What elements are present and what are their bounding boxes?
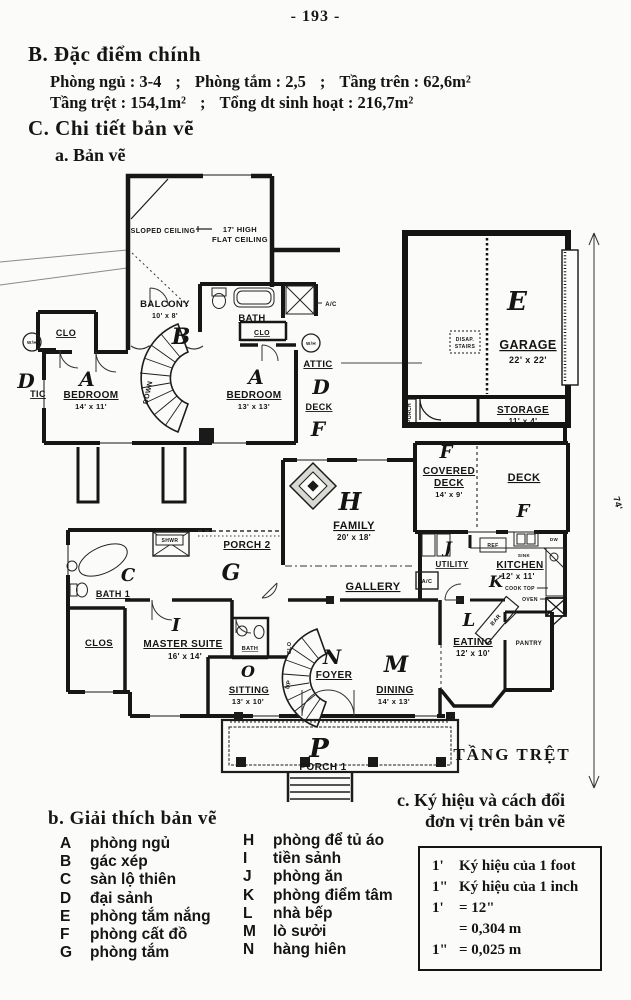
room-letter-n: N <box>322 645 342 669</box>
label-dw: DW <box>550 537 559 542</box>
room-letter-l: L <box>462 610 476 631</box>
legend-item: Itiền sảnh <box>243 850 393 868</box>
label-kitchen-dims: 12' x 11' <box>501 572 535 581</box>
room-letter-a1: A <box>77 367 95 391</box>
legend-item: Jphòng ăn <box>243 868 393 886</box>
label-covered-deck-2: DECK <box>434 478 464 489</box>
floor-level-label: TẦNG TRỆT <box>453 745 570 764</box>
label-wh-left: W/H <box>27 340 37 345</box>
unit-row: 1"Ký hiệu của 1 inch <box>432 877 600 898</box>
upper-bath-fixtures <box>212 286 322 314</box>
room-letter-b: B <box>171 324 191 350</box>
small-bath-fixtures <box>237 626 264 639</box>
label-bath-small: BATH <box>242 646 258 652</box>
room-letter-e: E <box>506 287 528 317</box>
ceiling-divider-symbol <box>196 226 212 232</box>
label-gallery: GALLERY <box>346 581 401 593</box>
room-letter-o: O <box>241 662 255 681</box>
label-ref: REF <box>487 543 498 549</box>
label-foyer: FOYER <box>316 670 353 681</box>
label-cook-top: COOK TOP <box>505 586 535 592</box>
label-sitting-dims: 13' x 10' <box>232 697 264 706</box>
label-disap-stairs-2: STAIRS <box>455 344 476 350</box>
fireplace <box>290 463 336 509</box>
legend-item: Nhàng hiên <box>243 941 393 959</box>
label-utility: UTILITY <box>435 560 468 569</box>
legend-item: Csàn lộ thiên <box>60 871 211 889</box>
legend-item: Aphòng ngủ <box>60 835 211 853</box>
label-bath1: BATH 1 <box>96 589 130 599</box>
legend-item: Kphòng điểm tâm <box>243 887 393 905</box>
room-letter-d-right: D <box>311 375 330 399</box>
label-oven: OVEN <box>522 597 538 603</box>
label-eating-dims: 12' x 10' <box>456 649 490 658</box>
label-bath-upper-clo: CLO <box>254 330 270 337</box>
label-foyer-clo: CLO <box>287 641 293 654</box>
label-covered-deck-dims: 14' x 9' <box>435 490 463 499</box>
label-attic-right: ATTIC <box>303 359 332 370</box>
room-letter-p: P <box>308 734 330 764</box>
room-letter-m: M <box>383 652 409 678</box>
unit-row: 1"= 0,025 m <box>432 940 600 961</box>
label-clo-left: CLO <box>56 328 76 338</box>
book-page: - 193 - B. Đặc điểm chính Phòng ngủ : 3-… <box>0 0 631 1000</box>
dimension-line-74ft <box>589 233 599 788</box>
legend-item: Ephòng tắm nắng <box>60 908 211 926</box>
label-balcony-dims: 10' x 8' <box>152 313 178 320</box>
label-bedroom2-dims: 13' x 13' <box>238 402 270 411</box>
label-dining: DINING <box>376 685 413 696</box>
label-dining-dims: 14' x 13' <box>378 697 410 706</box>
label-porch2: PORCH 2 <box>223 540 270 551</box>
unit-row: = 0,304 m <box>432 919 600 940</box>
label-attic-left-cut: TIC <box>30 389 46 399</box>
legend-item: Lnhà bếp <box>243 905 393 923</box>
label-clos: CLOS <box>85 638 113 649</box>
room-letter-c: C <box>121 565 136 586</box>
room-letter-f-upper: F <box>310 417 327 441</box>
label-porch-vertical: PORCH <box>407 403 413 423</box>
room-letter-j: J <box>441 538 453 557</box>
unit-row: 1'= 12" <box>432 898 600 919</box>
label-kitchen: KITCHEN <box>496 560 543 571</box>
label-master-suite: MASTER SUITE <box>143 639 222 650</box>
legend-item: Dđại sảnh <box>60 890 211 908</box>
label-ac-upper: A/C <box>325 302 337 308</box>
label-family: FAMILY <box>333 520 375 532</box>
label-sitting: SITTING <box>229 685 269 696</box>
label-wh-right: W/H <box>306 341 316 346</box>
label-bedroom1-dims: 14' x 11' <box>75 402 107 411</box>
room-letter-f-covered: F <box>439 442 454 463</box>
roof-outline-lines <box>0 250 422 363</box>
label-bedroom1: BEDROOM <box>63 390 118 401</box>
label-garage-dims: 22' x 22' <box>509 355 547 365</box>
label-ceiling-height: 17' HIGH <box>223 225 257 234</box>
label-disap-stairs-1: DISAP. <box>456 337 475 343</box>
label-porch1: PORCH 1 <box>299 762 346 773</box>
legend-heading: b. Giải thích bản vẽ <box>48 808 217 830</box>
label-storage-dims: 11' x 4' <box>509 417 538 426</box>
label-eating: EATING <box>453 637 492 648</box>
room-letter-i: I <box>171 615 181 636</box>
label-garage: GARAGE <box>499 338 556 352</box>
legend-item: Bgác xép <box>60 853 211 871</box>
legend-item: Fphòng cất đồ <box>60 926 211 944</box>
unit-row: 1'Ký hiệu của 1 foot <box>432 856 600 877</box>
label-shwr: SHWR <box>162 538 179 544</box>
room-letter-h: H <box>338 487 363 516</box>
legend-right-column: Hphòng để tủ áo Itiền sảnh Jphòng ăn Kph… <box>243 832 393 959</box>
legend-item: Hphòng để tủ áo <box>243 832 393 850</box>
label-bath-upper: BATH <box>238 313 265 324</box>
units-heading: c. Ký hiệu và cách đổi đơn vị trên bản v… <box>397 790 565 832</box>
label-bedroom2: BEDROOM <box>226 390 281 401</box>
label-sink: SINK <box>518 553 531 558</box>
label-family-dims: 20' x 18' <box>337 533 371 542</box>
label-bar: BAR <box>490 613 503 627</box>
label-overall-depth: 74' <box>611 495 624 510</box>
label-deck: DECK <box>508 472 541 484</box>
label-master-dims: 16' x 14' <box>168 652 202 661</box>
label-balcony: BALCONY <box>140 299 190 310</box>
label-pantry: PANTRY <box>516 641 542 647</box>
label-flat-ceiling: FLAT CEILING <box>212 235 268 244</box>
label-sloped-ceiling: SLOPED CEILING <box>131 228 196 235</box>
legend-item: Mlò sưởi <box>243 923 393 941</box>
label-storage: STORAGE <box>497 405 549 416</box>
label-deck-upper: DECK <box>305 402 332 412</box>
room-letter-f-deck: F <box>516 501 531 522</box>
room-letter-a2: A <box>246 365 264 389</box>
label-ac-lower: A/C <box>422 579 433 585</box>
unit-conversion-box: 1'Ký hiệu của 1 foot 1"Ký hiệu của 1 inc… <box>418 846 602 971</box>
legend-left-column: Aphòng ngủ Bgác xép Csàn lộ thiên Dđại s… <box>60 835 211 962</box>
label-covered-deck-1: COVERED <box>423 466 475 477</box>
legend-item: Gphòng tắm <box>60 944 211 962</box>
room-letter-g: G <box>222 560 241 586</box>
